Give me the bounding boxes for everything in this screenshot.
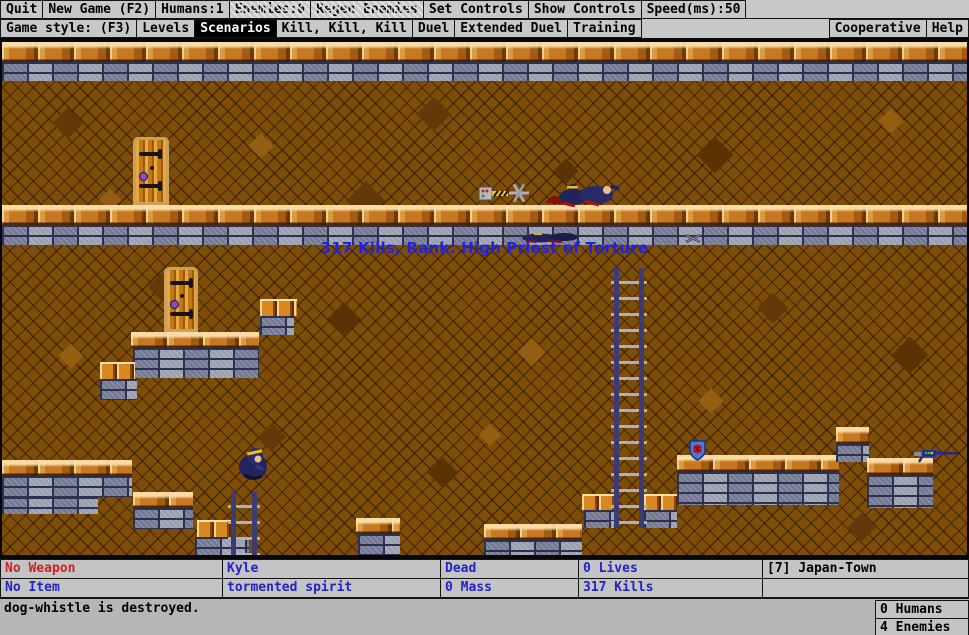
status-lives: 0 Lives (578, 559, 763, 579)
door-peephole-icon (150, 166, 154, 170)
status-mass: 0 Mass (440, 578, 579, 598)
message-area: dog-whistle is destroyed. 0 Humans 4 Ene… (0, 598, 969, 635)
door-hinge-icon (139, 152, 160, 156)
stone-block (484, 540, 582, 555)
status-player-name: Kyle (222, 559, 441, 579)
enemies-count-button: Enemies:0 (229, 0, 311, 19)
show-controls-button[interactable]: Show Controls (528, 0, 642, 19)
status-weapon: No Weapon (0, 559, 223, 579)
set-controls-button[interactable]: Set Controls (423, 0, 529, 19)
stone-block (260, 316, 294, 335)
player-name-value: Kyle (227, 561, 258, 576)
game-message: dog-whistle is destroyed. (4, 601, 200, 616)
scenarios-button[interactable]: Scenarios (194, 19, 276, 38)
xevil-game-window: Quit New Game (F2) Humans:1 Enemies:0 Re… (0, 0, 969, 635)
platform (836, 427, 869, 444)
stone-block (836, 444, 869, 462)
menu-bar-top: Quit New Game (F2) Humans:1 Enemies:0 Re… (0, 0, 969, 19)
door (164, 267, 198, 332)
stone-block (2, 62, 967, 81)
ladder (611, 268, 647, 528)
door-knob-icon (170, 300, 179, 309)
platform (2, 205, 967, 225)
duel-button[interactable]: Duel (412, 19, 455, 38)
bg-diamond (479, 424, 502, 447)
crate-block (644, 494, 677, 510)
bg-diamond (248, 133, 273, 158)
player-ninja-sprite (237, 446, 271, 481)
platform (484, 524, 582, 540)
stone-block (133, 508, 193, 529)
status-level-spacer (762, 578, 969, 598)
humans-count-button[interactable]: Humans:1 (155, 0, 230, 19)
mass-value: 0 Mass (445, 580, 492, 595)
rifle-pickup-sprite (912, 446, 960, 463)
training-button[interactable]: Training (567, 19, 642, 38)
lives-value: 0 Lives (583, 561, 638, 576)
stone-block (133, 348, 259, 378)
stone-block (2, 497, 98, 514)
bg-diamond (327, 302, 361, 336)
cooperative-button[interactable]: Cooperative (829, 19, 927, 38)
enemies-counter: 4 Enemies (875, 618, 969, 635)
stone-block (644, 510, 677, 528)
crate-block (197, 520, 232, 537)
platform (131, 332, 259, 348)
kill-kill-kill-button[interactable]: Kill, Kill, Kill (276, 19, 413, 38)
platform (2, 460, 132, 476)
platform (356, 518, 400, 534)
stone-block (358, 534, 400, 555)
quit-button[interactable]: Quit (0, 0, 43, 19)
status-bar: No Weapon Kyle Dead 0 Lives [7] Japan-To… (0, 559, 969, 598)
kills-value: 317 Kills (583, 580, 653, 595)
game-style-label: Game style: (F3) (0, 19, 137, 38)
flamethrower-weapon-sprite (478, 183, 532, 205)
enemies-value: 4 Enemies (880, 620, 950, 635)
humans-counter: 0 Humans (875, 600, 969, 619)
ladder (228, 492, 260, 555)
bg-diamond (848, 513, 876, 541)
menu-bar-game-style: Game style: (F3) Levels Scenarios Kill, … (0, 19, 969, 38)
bg-diamond (697, 137, 734, 174)
bg-diamond (757, 292, 788, 323)
bg-diamond (698, 388, 723, 413)
game-viewport-frame: 317 Kills, Rank: High Priest of Torture (0, 38, 969, 559)
status-player-class: tormented spirit (222, 578, 441, 598)
door-hinge-icon (170, 281, 191, 285)
game-world[interactable]: 317 Kills, Rank: High Priest of Torture (2, 42, 967, 555)
bg-diamond (58, 343, 83, 368)
shield-pickup-sprite (688, 439, 707, 461)
player-class-value: tormented spirit (227, 580, 352, 595)
new-game-button[interactable]: New Game (F2) (42, 0, 156, 19)
door-peephole-icon (180, 294, 184, 298)
status-item: No Item (0, 578, 223, 598)
bg-diamond (518, 338, 546, 366)
bg-diamond (878, 108, 903, 133)
door-hinge-icon (170, 312, 191, 316)
status-state: Dead (440, 559, 579, 579)
speed-button[interactable]: Speed(ms):50 (641, 0, 747, 19)
stone-block (677, 472, 839, 505)
rank-overlay-text: 317 Kills, Rank: High Priest of Torture (2, 239, 967, 257)
menu-filler (642, 19, 830, 38)
status-level: [7] Japan-Town (762, 559, 969, 579)
crate-block (100, 362, 135, 379)
humans-value: 0 Humans (880, 602, 943, 617)
bg-diamond (892, 337, 929, 374)
dead-ninja-sprite (543, 180, 623, 207)
item-value: No Item (5, 580, 60, 595)
bg-diamond (52, 107, 83, 138)
platform (133, 492, 193, 508)
levels-button[interactable]: Levels (136, 19, 195, 38)
crate-block (260, 299, 297, 316)
door-hinge-icon (139, 184, 160, 188)
menu-filler (746, 0, 969, 19)
bg-diamond (417, 97, 451, 131)
level-value: [7] Japan-Town (767, 561, 877, 576)
state-value: Dead (445, 561, 476, 576)
weapon-value: No Weapon (5, 561, 75, 576)
stone-block (2, 476, 132, 497)
stone-block (100, 379, 137, 400)
door-knob-icon (139, 172, 148, 181)
extended-duel-button[interactable]: Extended Duel (454, 19, 568, 38)
platform (2, 42, 967, 62)
bg-diamond (427, 457, 458, 488)
regen-enemies-button: Regen Enemies (310, 0, 424, 19)
stone-block (867, 475, 933, 508)
status-kills: 317 Kills (578, 578, 763, 598)
door (133, 137, 169, 205)
help-button[interactable]: Help (926, 19, 969, 38)
